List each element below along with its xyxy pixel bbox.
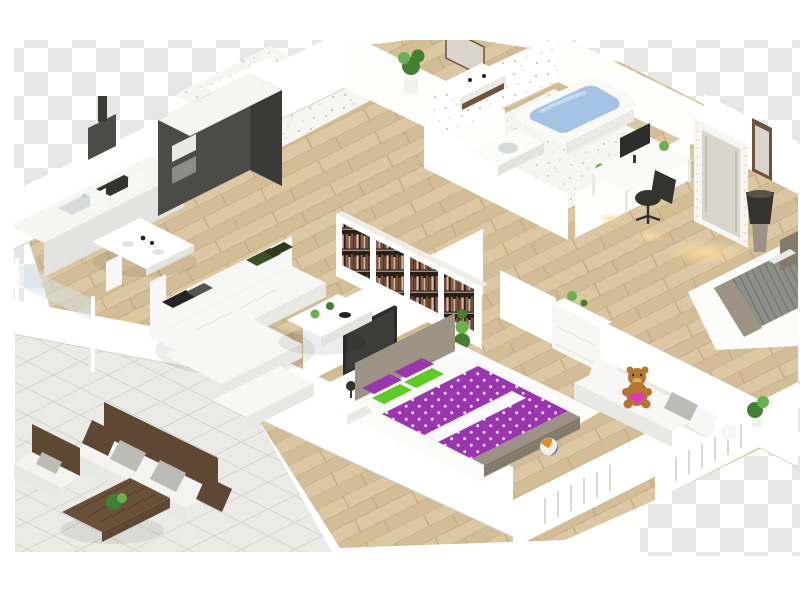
console-item xyxy=(468,78,472,82)
plant-pot xyxy=(752,418,762,427)
table-planter xyxy=(117,493,127,503)
toy-ball xyxy=(540,438,558,456)
bedside-lamp xyxy=(346,381,356,391)
desk-leg xyxy=(592,174,595,196)
dresser-plant xyxy=(567,291,577,301)
dresser-plant xyxy=(581,300,588,307)
monitor-stand xyxy=(633,155,636,163)
mirror-glass xyxy=(702,130,740,238)
floor-plan-render xyxy=(0,0,800,600)
railing-post xyxy=(91,296,95,372)
plant-pot xyxy=(404,78,418,94)
hood-chimney xyxy=(98,96,107,122)
railing-post xyxy=(15,258,19,334)
table-bowl xyxy=(339,312,351,318)
plate xyxy=(122,241,134,247)
mirror-light-pool xyxy=(665,239,745,265)
table-item xyxy=(150,241,154,245)
table-plant xyxy=(326,302,334,310)
faucet xyxy=(82,194,86,198)
chair-seat xyxy=(635,190,661,206)
door-glass xyxy=(755,125,769,176)
apartment-isometric-scene xyxy=(0,0,800,600)
desk-leg xyxy=(688,160,691,182)
lamp-top xyxy=(747,190,773,198)
desk-leg xyxy=(625,190,628,212)
vanity-basin xyxy=(498,143,518,154)
lamp-pedestal xyxy=(752,222,768,252)
table-plant xyxy=(311,310,320,319)
light-pool xyxy=(598,213,622,223)
desk-plant xyxy=(659,141,669,151)
light-pool xyxy=(634,230,666,242)
console-item xyxy=(482,74,486,78)
plate xyxy=(152,249,164,255)
pouf xyxy=(721,424,737,440)
table-item xyxy=(141,236,146,241)
